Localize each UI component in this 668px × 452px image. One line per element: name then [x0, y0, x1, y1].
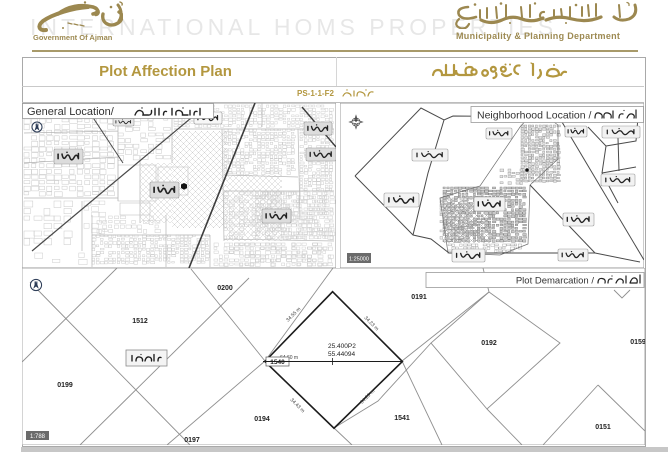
svg-text:0200: 0200 [217, 285, 233, 292]
svg-text:0192: 0192 [481, 340, 497, 347]
svg-text:Plot Demarcation /: Plot Demarcation / [516, 276, 595, 287]
svg-text:1512: 1512 [132, 318, 148, 325]
svg-text:1:788: 1:788 [30, 434, 46, 440]
svg-text:0151: 0151 [595, 424, 611, 431]
svg-text:0197: 0197 [184, 437, 200, 444]
svg-text:1:25000: 1:25000 [349, 257, 369, 263]
svg-text:0194: 0194 [254, 416, 270, 423]
svg-text:55.44094: 55.44094 [328, 351, 355, 358]
svg-text:0199: 0199 [57, 382, 73, 389]
svg-text:0191: 0191 [411, 294, 427, 301]
svg-text:N: N [355, 122, 358, 126]
svg-text:1541: 1541 [394, 415, 410, 422]
svg-text:N: N [34, 280, 38, 286]
svg-text:Neighborhood Location /: Neighborhood Location / [477, 110, 592, 122]
svg-text:1540: 1540 [270, 359, 285, 366]
svg-text:25.400P2: 25.400P2 [328, 343, 356, 350]
svg-text:General Location/: General Location/ [27, 106, 115, 118]
svg-text:0159: 0159 [630, 339, 645, 346]
